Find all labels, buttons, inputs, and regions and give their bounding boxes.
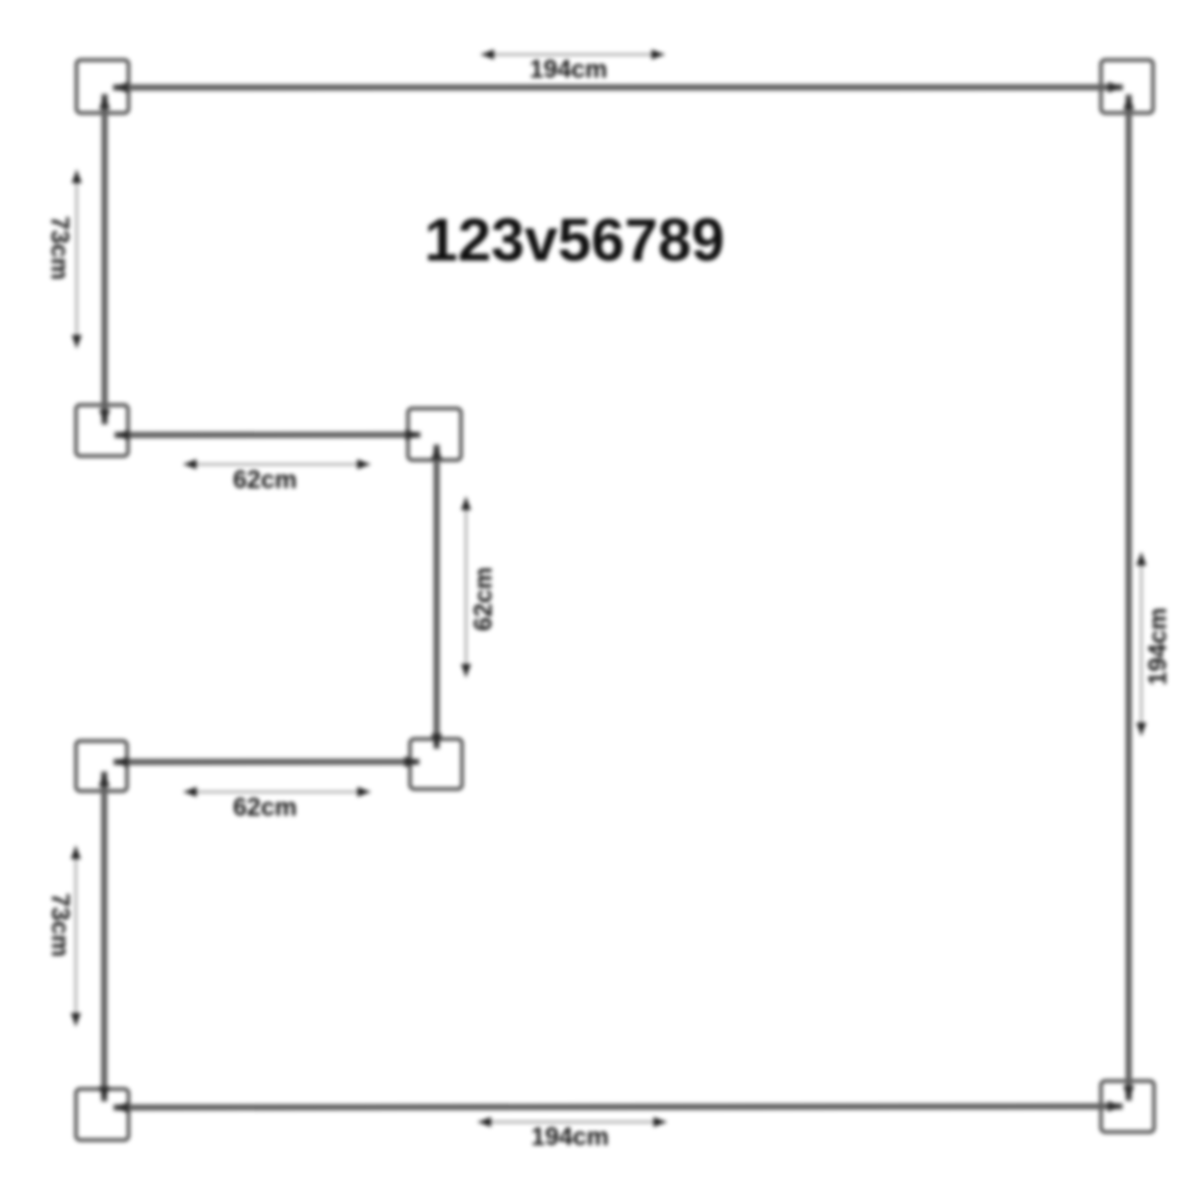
svg-text:73cm: 73cm bbox=[46, 216, 74, 280]
svg-text:194cm: 194cm bbox=[1144, 608, 1172, 686]
svg-text:73cm: 73cm bbox=[46, 893, 74, 957]
svg-text:123v56789: 123v56789 bbox=[424, 207, 724, 274]
svg-text:62cm: 62cm bbox=[233, 794, 297, 822]
svg-text:62cm: 62cm bbox=[470, 567, 498, 631]
svg-text:194cm: 194cm bbox=[531, 1123, 609, 1151]
svg-text:62cm: 62cm bbox=[233, 466, 297, 494]
svg-text:194cm: 194cm bbox=[530, 56, 608, 84]
